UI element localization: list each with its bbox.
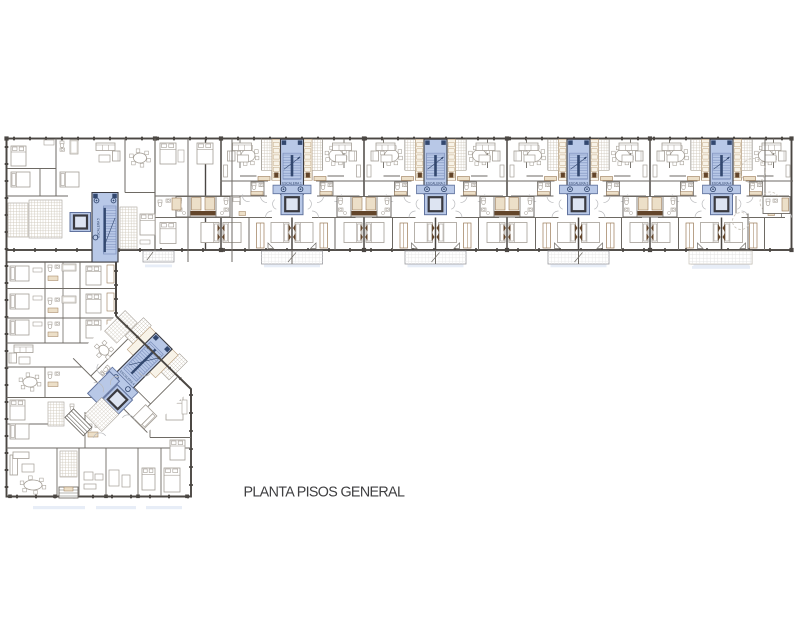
svg-text:PLANTA PISOS GENERAL: PLANTA PISOS GENERAL [244,485,405,501]
svg-text:ESCALERA 5: ESCALERA 5 [97,218,101,238]
